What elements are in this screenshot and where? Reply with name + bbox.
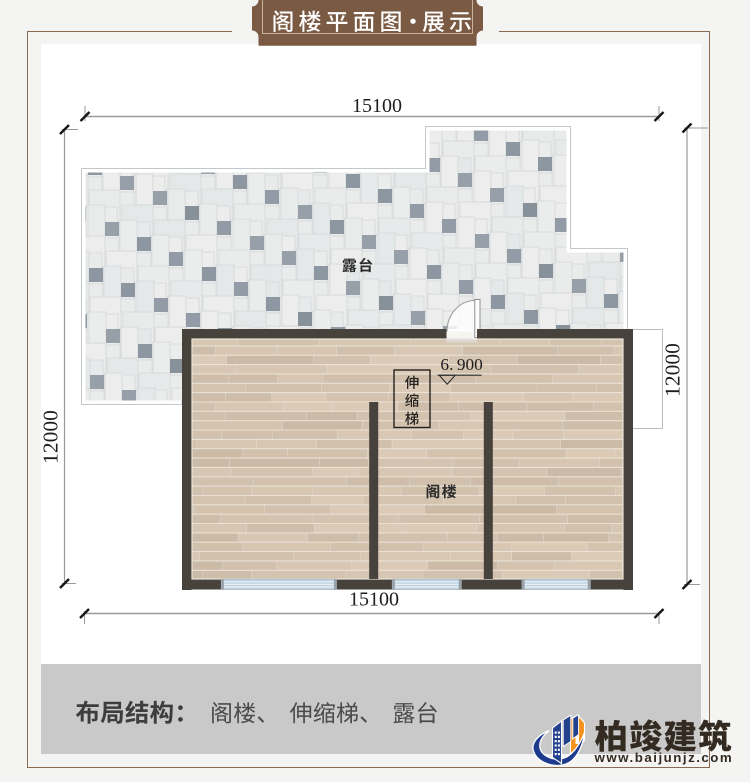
svg-text:12000: 12000 — [38, 410, 62, 464]
svg-text:6. 900: 6. 900 — [440, 355, 482, 374]
svg-text:12000: 12000 — [660, 343, 684, 397]
svg-text:www.baijunjz.com: www.baijunjz.com — [594, 750, 734, 765]
svg-text:15100: 15100 — [352, 95, 402, 117]
svg-text:15100: 15100 — [349, 589, 399, 611]
